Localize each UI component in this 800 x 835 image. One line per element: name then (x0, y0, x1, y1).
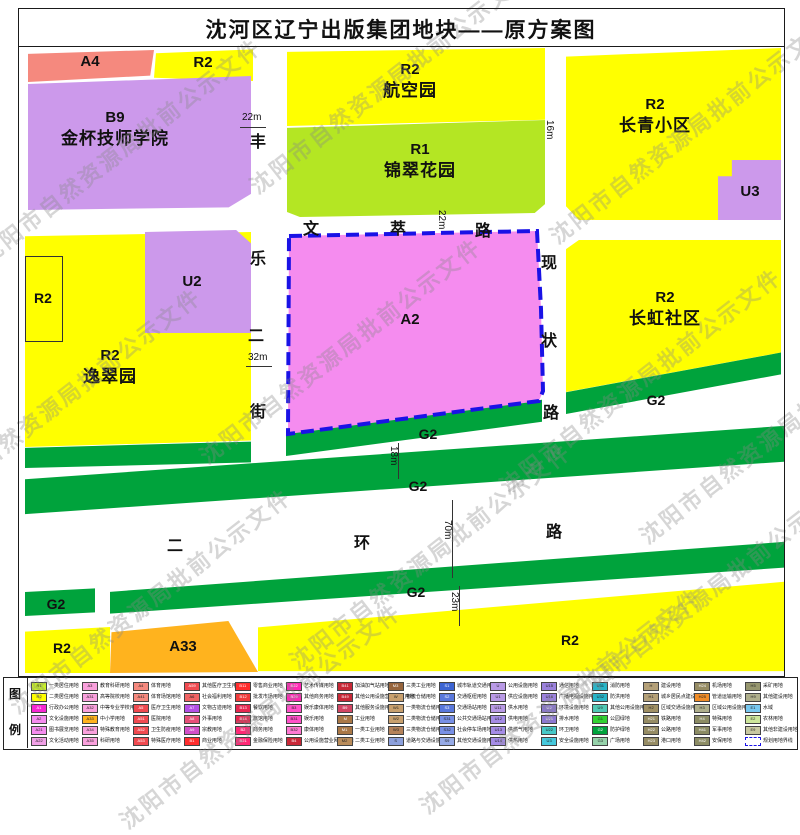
legend-entry-label: 体育场馆用地 (151, 695, 181, 700)
parcel-a2-label: A2 (380, 310, 440, 330)
legend-entry-label: 二类工业用地 (355, 739, 385, 744)
legend-swatch: A52 (133, 726, 149, 735)
road-width-22m-north: 22m (242, 112, 261, 123)
legend-swatch: U9 (592, 704, 608, 713)
legend-swatch: U15 (541, 682, 557, 691)
legend-swatch: A9 (184, 726, 200, 735)
legend-entry-label: 文物古迹用地 (202, 706, 232, 711)
legend-header-char-2: 例 (9, 721, 21, 738)
legend-entry-label: 文化活动用地 (49, 739, 79, 744)
legend-entry-B13: B13餐饮用地 (235, 703, 285, 713)
road-width-32m: 32m (248, 352, 267, 363)
legend-swatch: H22 (643, 726, 659, 735)
legend-entry-label: 其他商务用地 (304, 695, 334, 700)
legend-entry-label: 二类居住用地 (49, 695, 79, 700)
road-xianzhuang-char-1: 现 (541, 249, 557, 273)
greenbelt-g2-below-a2-label: G2 (410, 424, 446, 446)
legend-entry-B1: B1商业用地 (184, 736, 234, 746)
legend-swatch: S (388, 737, 404, 746)
legend-swatch: A21 (31, 726, 47, 735)
legend-entry-label: 商业用地 (202, 739, 222, 744)
greenbelt-g2-south-main-label: G2 (398, 582, 434, 604)
legend-swatch: A1 (31, 704, 47, 713)
legend-swatch: U21 (541, 715, 557, 724)
legend-swatch: S3 (439, 704, 455, 713)
road-fengle-char-1: 丰 (250, 128, 266, 152)
legend-entry-label: 特殊医疗用地 (151, 739, 181, 744)
greenbelt-g2-east-label: G2 (638, 390, 674, 412)
legend-swatch: A41 (133, 693, 149, 702)
legend-entry-B2: B2商务用地 (235, 725, 285, 735)
legend-entry-label: 安全设施用地 (559, 739, 589, 744)
legend-entry-U11: U11供水用地 (490, 703, 540, 713)
legend-swatch: G1 (592, 715, 608, 724)
legend-entry-label: 外事用地 (202, 717, 222, 722)
legend-entry-label: 交通枢纽用地 (457, 695, 487, 700)
legend-entry-E1: E1水域 (745, 703, 779, 713)
legend-entry-label: 采矿用地 (763, 684, 783, 689)
legend-swatch: B4 (286, 737, 302, 746)
legend-entry-label: 文化设施用地 (49, 717, 79, 722)
legend-swatch: S1 (439, 682, 455, 691)
legend-entry-label: 环境设施用地 (559, 706, 589, 711)
legend-swatch: B11 (235, 682, 251, 691)
road-wencui-char-3: 路 (475, 217, 491, 241)
legend-entry-label: 物流仓储用地 (406, 695, 436, 700)
legend-swatch: U32 (592, 693, 608, 702)
road-erhuan-char-3: 路 (546, 518, 562, 542)
legend-entry-E9: E9其他非建设用地 (745, 725, 800, 735)
legend-entry-H42: H42安保用地 (694, 736, 744, 746)
legend-entry-label: 交通场站用地 (457, 706, 487, 711)
parcel-r2-bottom-left-label: R2 (42, 638, 82, 660)
road-fengle-char-2: 乐 (250, 245, 266, 269)
legend-entry-label: 医疗卫生用地 (151, 706, 181, 711)
legend-swatch: A7 (184, 704, 200, 713)
legend-entry-label: 行政办公用地 (49, 706, 79, 711)
legend-swatch: H41 (694, 726, 710, 735)
legend-entry-label: 宗教用地 (202, 728, 222, 733)
legend-swatch: H21 (643, 715, 659, 724)
legend-entry-label: 社会福利用地 (202, 695, 232, 700)
legend-swatch: H24 (694, 682, 710, 691)
legend-entry-label: 图书展览用地 (49, 728, 79, 733)
legend-swatch: B3 (286, 704, 302, 713)
legend-swatch: A8 (184, 715, 200, 724)
legend-entry-label: 餐饮用地 (253, 706, 273, 711)
parcel-hangkongyuan-label: R2 航空园 (330, 60, 490, 103)
legend-entry-label: 三类工业用地 (406, 684, 436, 689)
legend-entry-label: 零售商业用地 (253, 684, 283, 689)
greenbelt-g2-north-label: G2 (400, 476, 436, 498)
legend-swatch: A33 (82, 715, 98, 724)
legend-entry-label: 消防用地 (610, 684, 630, 689)
legend-entry-label: 广场用地 (610, 739, 630, 744)
road-erhuan-char-2: 环 (354, 529, 370, 553)
legend-swatch: H42 (694, 737, 710, 746)
legend-swatch: U2 (541, 704, 557, 713)
page-title: 沈河区辽宁出版集团地块——原方案图 (18, 14, 784, 44)
legend-entry-label: 其他非建设用地 (763, 728, 798, 733)
legend-entry-boundary: 规划用地界线 (745, 736, 800, 746)
legend-swatch: W1 (388, 704, 404, 713)
legend-entry-H9: H9其他建设用地 (745, 692, 800, 702)
legend-swatch: W3 (388, 726, 404, 735)
legend-entry-label: 科研用地 (100, 739, 120, 744)
legend-entry-label: 娱乐康体用地 (304, 706, 334, 711)
road-wencui-char-2: 萃 (390, 215, 406, 239)
road-xianzhuang-char-2: 状 (541, 327, 557, 351)
legend-swatch: U12 (490, 715, 506, 724)
legend-entry-H: H建设用地 (643, 681, 693, 691)
legend-entry-label: 艺术传媒用地 (304, 684, 334, 689)
legend-header: 图 例 (3, 677, 28, 748)
legend-entry-B32: B32康体用地 (286, 725, 336, 735)
legend-swatch: U22 (541, 726, 557, 735)
legend-swatch: A6 (184, 693, 200, 702)
legend-entry-U21: U21排水用地 (541, 714, 591, 724)
legend-swatch: W2 (388, 715, 404, 724)
legend-swatch: S9 (439, 737, 455, 746)
legend-entry-label: 港口用地 (661, 739, 681, 744)
legend-entry-label: 体育用地 (151, 684, 171, 689)
legend-entry-label: 排水用地 (559, 717, 579, 722)
legend-entry-label: 金融保险用地 (253, 739, 283, 744)
legend-entry-label: 加油加气站用地 (355, 684, 390, 689)
legend-swatch: A31 (82, 693, 98, 702)
legend-entry-G2: G2防护绿地 (592, 725, 642, 735)
legend-entry-label: 水域 (763, 706, 773, 711)
legend-entry-label: 一类居住用地 (49, 684, 79, 689)
parcel-r2-bottom-right-label: R2 (545, 630, 595, 652)
legend-swatch: H (643, 682, 659, 691)
legend-swatch: B12 (235, 693, 251, 702)
legend-entry-A9: A9宗教用地 (184, 725, 234, 735)
legend-entry-label: 环卫用地 (559, 728, 579, 733)
legend-entry-G1: G1公园绿地 (592, 714, 642, 724)
legend-swatch: A4 (133, 682, 149, 691)
legend-entry-U15: U15通信用地 (541, 681, 591, 691)
legend-entry-label: 中小学用地 (100, 717, 125, 722)
legend-entry-H23: H23港口用地 (643, 736, 693, 746)
parcel-changqing-label: R2 长青小区 (575, 95, 735, 138)
legend-entry-label: 商务用地 (253, 728, 273, 733)
road-xianzhuang-char-3: 路 (543, 399, 559, 423)
legend-entry-U22: U22环卫用地 (541, 725, 591, 735)
legend-swatch: A2 (31, 715, 47, 724)
legend-swatch: A51 (133, 715, 149, 724)
parcel-changhong-label: R2 长虹社区 (585, 288, 745, 331)
legend-swatch: W (388, 693, 404, 702)
road-wencui-char-1: 文 (303, 215, 319, 239)
legend-swatch: U3 (541, 737, 557, 746)
legend-entry-U12: U12供电用地 (490, 714, 540, 724)
legend-swatch: H23 (643, 737, 659, 746)
legend-swatch: U14 (490, 737, 506, 746)
legend-entry-B31: B31娱乐用地 (286, 714, 336, 724)
legend-entry-H24: H24机场用地 (694, 681, 744, 691)
road-width-22m-wencui: 22m (436, 210, 447, 229)
parcel-r2-northwest-label: R2 (173, 53, 233, 73)
greenbelt-g2-south-west-label: G2 (38, 594, 74, 616)
legend-entry-label: 规划用地界线 (763, 739, 793, 744)
legend-entry-label: 建设用地 (661, 684, 681, 689)
legend-swatch: M3 (388, 682, 404, 691)
legend-entry-A35: A35科研用地 (82, 736, 132, 746)
legend-swatch: E1 (745, 704, 761, 713)
legend-entry-label: 公路用地 (661, 728, 681, 733)
legend-swatch: E9 (745, 726, 761, 735)
legend-swatch: A22 (31, 737, 47, 746)
legend-entry-label: 其他建设用地 (763, 695, 793, 700)
legend-entry-M: M工业用地 (337, 714, 387, 724)
legend-swatch: A53 (133, 737, 149, 746)
legend-entry-label: 铁路用地 (661, 717, 681, 722)
legend-entry-label: 公园绿地 (610, 717, 630, 722)
legend-swatch: H9 (745, 693, 761, 702)
legend-entry-label: 高等院校用地 (100, 695, 130, 700)
legend-swatch: H2 (643, 704, 659, 713)
legend-entry-A8: A8外事用地 (184, 714, 234, 724)
road-width-16m: 16m (544, 120, 555, 139)
parcel-yicuiyuan-label: R2 逸翠园 (45, 346, 175, 389)
legend-swatch: B49 (337, 693, 353, 702)
road-fengle-char-3: 二 (248, 322, 264, 346)
legend-entry-A4: A4体育用地 (133, 681, 183, 691)
legend-swatch: A32 (82, 704, 98, 713)
legend-entry-label: 供燃气用地 (508, 728, 533, 733)
legend-entry-label: 医院用地 (151, 717, 171, 722)
legend-swatch: U1 (490, 693, 506, 702)
title-separator (18, 46, 784, 47)
legend-entry-label: 旅馆用地 (253, 717, 273, 722)
legend-swatch: U31 (592, 682, 608, 691)
legend-entry-label: 康体用地 (304, 728, 324, 733)
legend-entry-label: 供热用地 (508, 739, 528, 744)
legend-entry-label: 批发市场用地 (253, 695, 283, 700)
dimension-line (246, 366, 272, 367)
belt-width-23m: 23m (449, 592, 460, 611)
legend-entry-A51: A51医院用地 (133, 714, 183, 724)
parcel-r2-small-label: R2 (26, 288, 60, 310)
legend-entry-label: 供电用地 (508, 717, 528, 722)
legend-swatch: A35 (82, 737, 98, 746)
legend-swatch: M2 (337, 737, 353, 746)
legend-swatch: B21 (235, 737, 251, 746)
legend-swatch: S31 (439, 715, 455, 724)
legend-entry-H21: H21铁路用地 (643, 714, 693, 724)
legend-entry-H5: H5采矿用地 (745, 681, 795, 691)
legend-swatch: B13 (235, 704, 251, 713)
legend-entry-label: 军事用地 (712, 728, 732, 733)
legend-header-char-1: 图 (9, 685, 21, 702)
legend-swatch: U11 (490, 704, 506, 713)
legend-entry-H4: H4特殊用地 (694, 714, 744, 724)
legend-swatch: B29 (286, 693, 302, 702)
legend-swatch: H25 (694, 693, 710, 702)
parcel-a33-label: A33 (158, 637, 208, 657)
parcel-a4-label: A4 (60, 52, 120, 72)
parcel-a2-boundary (280, 222, 552, 444)
legend-entry-label: 教育科研用地 (100, 684, 130, 689)
legend-swatch: S32 (439, 726, 455, 735)
legend-entry-H22: H22公路用地 (643, 725, 693, 735)
legend-swatch: U16 (541, 693, 557, 702)
parcel-b9-label: B9 金杯技师学院 (35, 108, 195, 151)
legend-swatch: R2 (31, 693, 47, 702)
legend-entry-U31: U31消防用地 (592, 681, 642, 691)
legend-entry-label: 通信用地 (559, 684, 579, 689)
parcel-jincuihuayuan-label: R1 锦翠花园 (330, 140, 510, 183)
legend-swatch: G2 (592, 726, 608, 735)
legend-entry-label: 机场用地 (712, 684, 732, 689)
legend-swatch: A34 (82, 726, 98, 735)
legend-entry-label: 供水用地 (508, 706, 528, 711)
legend-entry-label: 安保用地 (712, 739, 732, 744)
legend-entry-label: 公用设施用地 (508, 684, 538, 689)
legend-swatch: B1 (184, 737, 200, 746)
legend-entry-G3: G3广场用地 (592, 736, 642, 746)
legend-swatch: E2 (745, 715, 761, 724)
legend-entry-label: 一类工业用地 (355, 728, 385, 733)
legend-swatch: B2 (235, 726, 251, 735)
legend-swatch (745, 737, 761, 746)
legend-swatch: B32 (286, 726, 302, 735)
legend-entry-label: 管道运输用地 (712, 695, 742, 700)
legend-swatch: U (490, 682, 506, 691)
planning-map-page: A4 R2 B9 金杯技师学院 R2 航空园 R1 锦翠花园 R2 长青小区 U… (0, 0, 800, 751)
legend-swatch: B22 (286, 682, 302, 691)
legend-swatch: M1 (337, 726, 353, 735)
legend-swatch: B31 (286, 715, 302, 724)
legend-entry-U13: U13供燃气用地 (490, 725, 548, 735)
road-erhuan-char-1: 二 (167, 532, 183, 556)
legend-entry-A33: A33中小学用地 (82, 714, 140, 724)
belt-width-18m: 18m (388, 446, 399, 465)
legend-entry-label: 防洪用地 (610, 695, 630, 700)
legend-entry-H41: H41军事用地 (694, 725, 744, 735)
legend-entry-label: 特殊教育用地 (100, 728, 130, 733)
legend-swatch: H5 (745, 682, 761, 691)
legend-swatch: M (337, 715, 353, 724)
road-width-70m: 70m (442, 520, 453, 539)
legend-entry-label: 工业用地 (355, 717, 375, 722)
legend-swatch: H4 (694, 715, 710, 724)
legend-swatch: R1 (31, 682, 47, 691)
legend-swatch: S2 (439, 693, 455, 702)
legend-swatch: H1 (643, 693, 659, 702)
parcel-u2-label: U2 (172, 272, 212, 292)
legend-entry-label: 农林用地 (763, 717, 783, 722)
legend-swatch: A3 (82, 682, 98, 691)
legend-entry-B14: B14旅馆用地 (235, 714, 285, 724)
legend-swatch: A59 (184, 682, 200, 691)
legend-entry-U32: U32防洪用地 (592, 692, 642, 702)
legend-entry-label: 供应设施用地 (508, 695, 538, 700)
legend-entry-label: 卫生防疫用地 (151, 728, 181, 733)
legend-swatch: B41 (337, 682, 353, 691)
legend-swatch: U13 (490, 726, 506, 735)
legend-entry-E2: E2农林用地 (745, 714, 795, 724)
legend-swatch: G3 (592, 737, 608, 746)
legend-entry-label: 防护绿地 (610, 728, 630, 733)
road-fengle-char-4: 街 (250, 398, 266, 422)
legend-swatch: A5 (133, 704, 149, 713)
legend-entry-label: 社会停车场用地 (457, 728, 492, 733)
legend-entry-label: 特殊用地 (712, 717, 732, 722)
legend-swatch: B9 (337, 704, 353, 713)
parcel-u3-label: U3 (730, 182, 770, 202)
legend-swatch: H3 (694, 704, 710, 713)
legend-entry-label: 娱乐用地 (304, 717, 324, 722)
legend-entry-U14: U14供热用地 (490, 736, 540, 746)
legend-swatch: B14 (235, 715, 251, 724)
